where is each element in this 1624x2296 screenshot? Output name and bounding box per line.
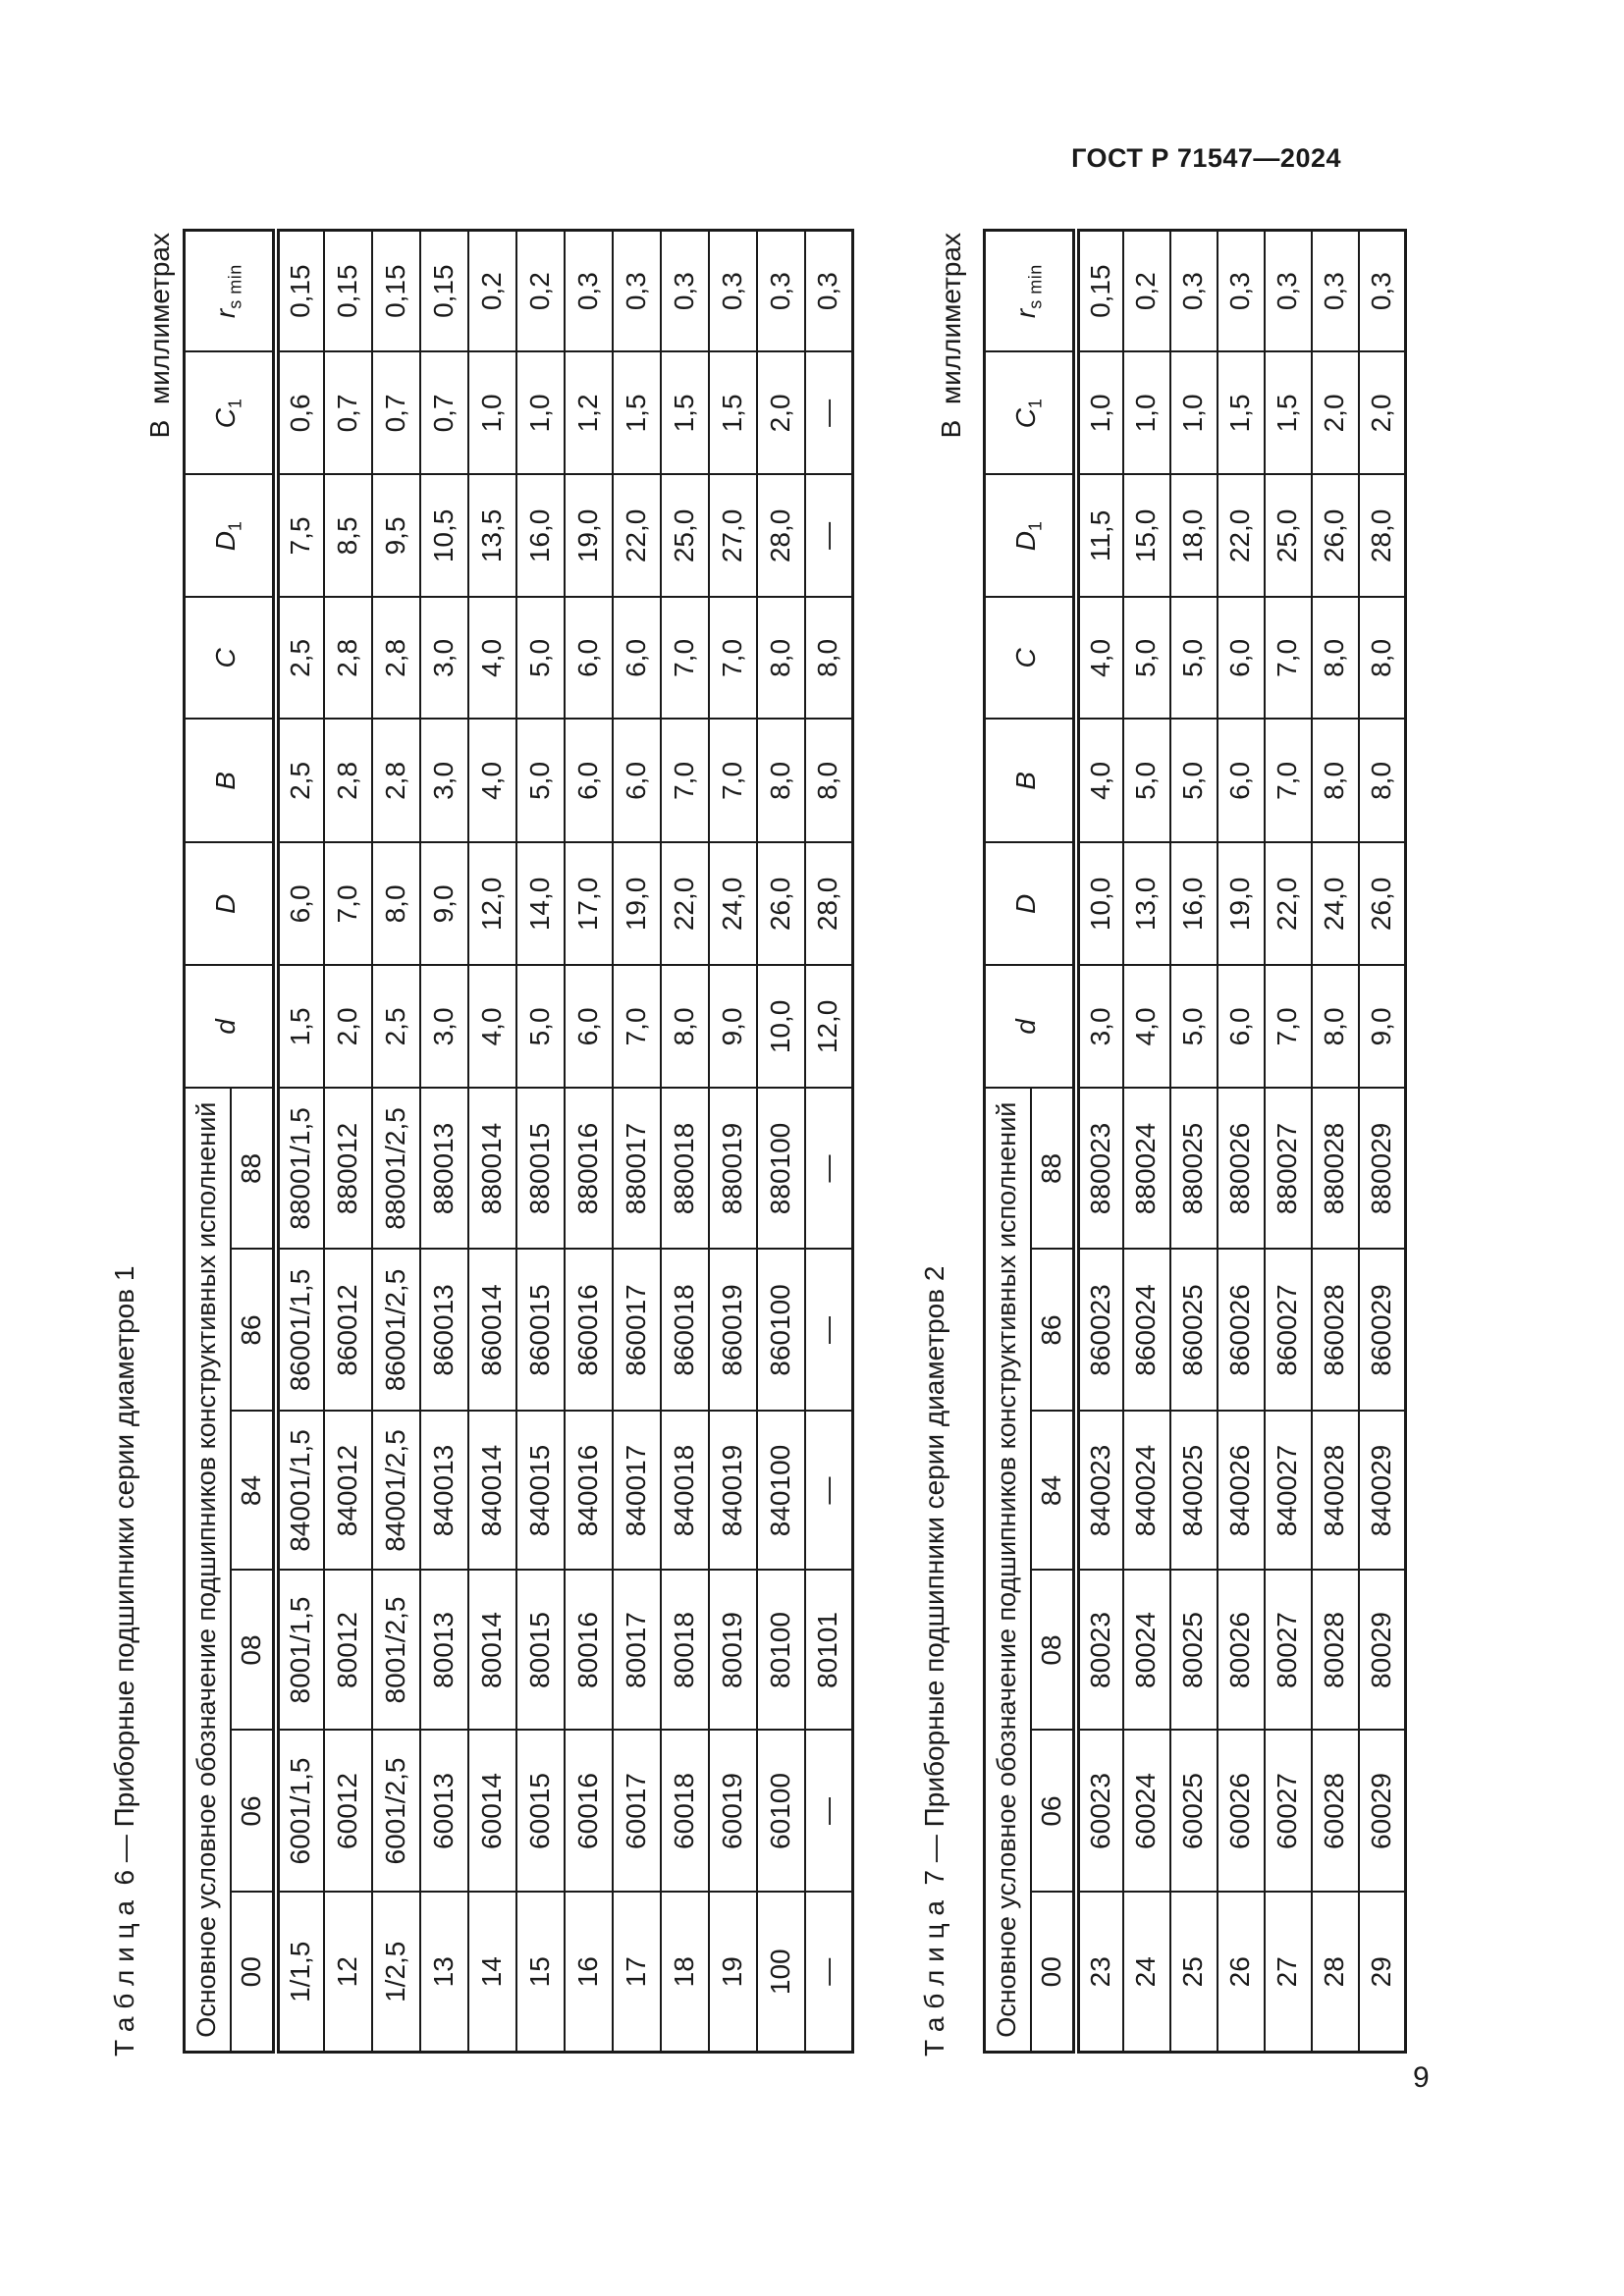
- cell: 0,6: [276, 351, 324, 474]
- cell: 840028: [1312, 1412, 1359, 1571]
- cell: 3,0: [420, 965, 468, 1088]
- cell: 25: [1170, 1893, 1218, 2053]
- cell: 19,0: [1218, 842, 1265, 965]
- cell: 12: [324, 1893, 372, 2053]
- cell: 25,0: [1265, 474, 1312, 597]
- cell: 0,3: [757, 230, 805, 351]
- cell: 1,5: [276, 965, 324, 1088]
- cell: 16: [565, 1893, 613, 2053]
- cell: 0,3: [661, 230, 709, 351]
- cell: 5,0: [1170, 719, 1218, 842]
- cell: 880015: [516, 1088, 565, 1249]
- cell: 26,0: [1312, 474, 1359, 597]
- cell: 7,0: [661, 719, 709, 842]
- series-header-00: 00: [1031, 1893, 1076, 2053]
- cell: 0,15: [324, 230, 372, 351]
- cell: 0,3: [805, 230, 853, 351]
- table-row: 1860018800188400188600188800188,022,07,0…: [661, 230, 709, 2052]
- cell: 6,0: [565, 965, 613, 1088]
- cell: 0,7: [420, 351, 468, 474]
- cell: 6,0: [276, 842, 324, 965]
- cell: 0,15: [276, 230, 324, 351]
- cell: 7,0: [613, 965, 661, 1088]
- table6-container: Основное условное обозначение подшипнико…: [183, 232, 864, 2054]
- cell: 4,0: [1076, 597, 1123, 719]
- standard-code-header: ГОСТ Р 71547—2024: [1071, 143, 1341, 174]
- cell: 3,0: [1076, 965, 1123, 1088]
- table-row: 2960029800298400298600298800299,026,08,0…: [1359, 230, 1406, 2052]
- cell: 60028: [1312, 1731, 1359, 1893]
- cell: 860027: [1265, 1250, 1312, 1412]
- cell: 80025: [1170, 1571, 1218, 1731]
- cell: 880029: [1359, 1088, 1406, 1249]
- table7-units-note: В миллиметрах: [935, 233, 968, 2056]
- cell: 860026: [1218, 1250, 1265, 1412]
- cell: 0,7: [372, 351, 420, 474]
- cell: 9,0: [420, 842, 468, 965]
- cell: 2,5: [276, 719, 324, 842]
- table-row: 1/1,56001/1,58001/1,584001/1,586001/1,58…: [276, 230, 324, 2052]
- cell: 1,5: [709, 351, 757, 474]
- cell: 8,0: [805, 719, 853, 842]
- cell: 880016: [565, 1088, 613, 1249]
- cell: 880025: [1170, 1088, 1218, 1249]
- cell: 1,0: [516, 351, 565, 474]
- series-header-84: 84: [1031, 1412, 1076, 1571]
- cell: 24,0: [709, 842, 757, 965]
- cell: 880023: [1076, 1088, 1123, 1249]
- cell: 60017: [613, 1731, 661, 1893]
- series-header-88: 88: [1031, 1088, 1076, 1249]
- cell: 1,5: [613, 351, 661, 474]
- column-header-D: D: [185, 842, 276, 965]
- cell: 8,0: [1312, 597, 1359, 719]
- cell: 6,0: [1218, 719, 1265, 842]
- cell: 10,0: [1076, 842, 1123, 965]
- cell: 88001/2,5: [372, 1088, 420, 1249]
- cell: 80023: [1076, 1571, 1123, 1731]
- series-header-88: 88: [231, 1088, 276, 1249]
- cell: 880100: [757, 1088, 805, 1249]
- cell: 14,0: [516, 842, 565, 965]
- cell: 0,7: [324, 351, 372, 474]
- cell: 840015: [516, 1412, 565, 1571]
- cell: 60025: [1170, 1731, 1218, 1893]
- cell: 16,0: [516, 474, 565, 597]
- cell: —: [805, 1412, 853, 1571]
- cell: 12,0: [805, 965, 853, 1088]
- cell: 6,0: [613, 719, 661, 842]
- column-header-D: D: [985, 842, 1076, 965]
- cell: 7,0: [709, 719, 757, 842]
- cell: 5,0: [1170, 965, 1218, 1088]
- cell: 60100: [757, 1731, 805, 1893]
- cell: 7,0: [1265, 965, 1312, 1088]
- table-row: 2760027800278400278600278800277,022,07,0…: [1265, 230, 1312, 2052]
- cell: 7,0: [1265, 719, 1312, 842]
- cell: 5,0: [1123, 597, 1170, 719]
- cell: 840027: [1265, 1412, 1312, 1571]
- cell: 880027: [1265, 1088, 1312, 1249]
- cell: 8,0: [757, 597, 805, 719]
- cell: 1,2: [565, 351, 613, 474]
- table-row: 1960019800198400198600198800199,024,07,0…: [709, 230, 757, 2052]
- cell: 0,3: [1312, 230, 1359, 351]
- cell: 5,0: [1170, 597, 1218, 719]
- cell: 880028: [1312, 1088, 1359, 1249]
- cell: 80019: [709, 1571, 757, 1731]
- cell: 18: [661, 1893, 709, 2053]
- cell: 5,0: [516, 965, 565, 1088]
- cell: 27: [1265, 1893, 1312, 2053]
- cell: 84001/1,5: [276, 1412, 324, 1571]
- cell: 840026: [1218, 1412, 1265, 1571]
- cell: 7,0: [661, 597, 709, 719]
- cell: 2,8: [324, 719, 372, 842]
- cell: —: [805, 1731, 853, 1893]
- cell: 22,0: [1265, 842, 1312, 965]
- cell: 6001/1,5: [276, 1731, 324, 1893]
- cell: 0,3: [1359, 230, 1406, 351]
- cell: 1,0: [1076, 351, 1123, 474]
- cell: 86001/2,5: [372, 1250, 420, 1412]
- cell: 2,0: [757, 351, 805, 474]
- column-header-d: d: [985, 965, 1076, 1088]
- cell: 0,15: [420, 230, 468, 351]
- cell: 860023: [1076, 1250, 1123, 1412]
- cell: 22,0: [1218, 474, 1265, 597]
- cell: 24: [1123, 1893, 1170, 2053]
- cell: 80017: [613, 1571, 661, 1731]
- cell: 0,3: [565, 230, 613, 351]
- table6-grid: Основное условное обозначение подшипнико…: [183, 229, 854, 2054]
- cell: —: [805, 1088, 853, 1249]
- cell: 860100: [757, 1250, 805, 1412]
- cell: 6,0: [565, 719, 613, 842]
- column-header-d: d: [185, 965, 276, 1088]
- cell: —: [805, 474, 853, 597]
- cell: 60018: [661, 1731, 709, 1893]
- cell: 100: [757, 1893, 805, 2053]
- table7-container: Основное условное обозначение подшипнико…: [983, 232, 1421, 2054]
- cell: 4,0: [468, 965, 516, 1088]
- cell: 0,2: [1123, 230, 1170, 351]
- cell: 29: [1359, 1893, 1406, 2053]
- cell: 1,5: [1265, 351, 1312, 474]
- table-row: 1660016800168400168600168800166,017,06,0…: [565, 230, 613, 2052]
- cell: 25,0: [661, 474, 709, 597]
- cell: 4,0: [468, 719, 516, 842]
- cell: 860029: [1359, 1250, 1406, 1412]
- cell: 880024: [1123, 1088, 1170, 1249]
- cell: 860018: [661, 1250, 709, 1412]
- cell: 8,0: [757, 719, 805, 842]
- document-page: ГОСТ Р 71547—2024 Т а б л и ц а 6 — Приб…: [0, 0, 1624, 2296]
- cell: 1/1,5: [276, 1893, 324, 2053]
- cell: 0,3: [613, 230, 661, 351]
- cell: 0,3: [1265, 230, 1312, 351]
- cell: 28: [1312, 1893, 1359, 2053]
- cell: 0,15: [372, 230, 420, 351]
- table-row: 1/2,56001/2,58001/2,584001/2,586001/2,58…: [372, 230, 420, 2052]
- cell: 7,0: [709, 597, 757, 719]
- cell: 9,5: [372, 474, 420, 597]
- cell: 28,0: [805, 842, 853, 965]
- page-number: 9: [1413, 2061, 1430, 2095]
- cell: 0,2: [468, 230, 516, 351]
- cell: 22,0: [613, 474, 661, 597]
- cell: 840024: [1123, 1412, 1170, 1571]
- table-row: 2460024800248400248600248800244,013,05,0…: [1123, 230, 1170, 2052]
- cell: 8,0: [1359, 719, 1406, 842]
- cell: 60024: [1123, 1731, 1170, 1893]
- cell: 26,0: [757, 842, 805, 965]
- cell: 8,5: [324, 474, 372, 597]
- table-row: 1560015800158400158600158800155,014,05,0…: [516, 230, 565, 2052]
- cell: 8,0: [1359, 597, 1406, 719]
- cell: 60015: [516, 1731, 565, 1893]
- table-row: 2860028800288400288600288800288,024,08,0…: [1312, 230, 1359, 2052]
- cell: 1,0: [1170, 351, 1218, 474]
- cell: 18,0: [1170, 474, 1218, 597]
- series-header-08: 08: [231, 1571, 276, 1731]
- column-header-C: C: [185, 597, 276, 719]
- column-header-C: C: [985, 597, 1076, 719]
- cell: 2,5: [372, 965, 420, 1088]
- cell: 880026: [1218, 1088, 1265, 1249]
- cell: 2,0: [1312, 351, 1359, 474]
- cell: —: [805, 1893, 853, 2053]
- table7-grid: Основное условное обозначение подшипнико…: [983, 229, 1407, 2054]
- table-row: 2560025800258400258600258800255,016,05,0…: [1170, 230, 1218, 2052]
- cell: 8001/2,5: [372, 1571, 420, 1731]
- cell: 860024: [1123, 1250, 1170, 1412]
- cell: 860019: [709, 1250, 757, 1412]
- cell: 6001/2,5: [372, 1731, 420, 1893]
- table-row: ——80101———12,028,08,08,0——0,3: [805, 230, 853, 2052]
- cell: 6,0: [1218, 965, 1265, 1088]
- cell: 80012: [324, 1571, 372, 1731]
- series-header-06: 06: [231, 1731, 276, 1893]
- cell: 6,0: [613, 597, 661, 719]
- cell: 2,5: [276, 597, 324, 719]
- cell: 8001/1,5: [276, 1571, 324, 1731]
- cell: 60026: [1218, 1731, 1265, 1893]
- series-header-08: 08: [1031, 1571, 1076, 1731]
- cell: 80027: [1265, 1571, 1312, 1731]
- cell: 860014: [468, 1250, 516, 1412]
- cell: 3,0: [420, 597, 468, 719]
- cell: 880017: [613, 1088, 661, 1249]
- cell: 2,0: [1359, 351, 1406, 474]
- cell: 1/2,5: [372, 1893, 420, 2053]
- series-header-84: 84: [231, 1412, 276, 1571]
- cell: 80024: [1123, 1571, 1170, 1731]
- cell: 0,3: [1218, 230, 1265, 351]
- cell: 12,0: [468, 842, 516, 965]
- cell: 60016: [565, 1731, 613, 1893]
- cell: 19: [709, 1893, 757, 2053]
- cell: 80014: [468, 1571, 516, 1731]
- cell: 13: [420, 1893, 468, 2053]
- cell: 4,0: [1123, 965, 1170, 1088]
- cell: 19,0: [613, 842, 661, 965]
- cell: 1,0: [1123, 351, 1170, 474]
- cell: 840016: [565, 1412, 613, 1571]
- cell: 60014: [468, 1731, 516, 1893]
- cell: 11,5: [1076, 474, 1123, 597]
- table-row: 2360023800238400238600238800233,010,04,0…: [1076, 230, 1123, 2052]
- cell: 60012: [324, 1731, 372, 1893]
- cell: 15: [516, 1893, 565, 2053]
- cell: 7,0: [1265, 597, 1312, 719]
- table6-title: Т а б л и ц а 6 — Приборные подшипники с…: [108, 1266, 141, 2056]
- column-header-rsmin: rs min: [185, 230, 276, 351]
- cell: 2,8: [372, 597, 420, 719]
- column-header-D1: D1: [185, 474, 276, 597]
- cell: 60023: [1076, 1731, 1123, 1893]
- cell: —: [805, 1250, 853, 1412]
- cell: 28,0: [1359, 474, 1406, 597]
- cell: 16,0: [1170, 842, 1218, 965]
- cell: 27,0: [709, 474, 757, 597]
- column-header-B: B: [985, 719, 1076, 842]
- cell: 80101: [805, 1571, 853, 1731]
- cell: 60013: [420, 1731, 468, 1893]
- cell: 28,0: [757, 474, 805, 597]
- cell: —: [805, 351, 853, 474]
- cell: 6,0: [565, 597, 613, 719]
- table-row: 1460014800148400148600148800144,012,04,0…: [468, 230, 516, 2052]
- cell: 840012: [324, 1412, 372, 1571]
- cell: 880013: [420, 1088, 468, 1249]
- cell: 9,0: [1359, 965, 1406, 1088]
- cell: 17: [613, 1893, 661, 2053]
- table-row: 100601008010084010086010088010010,026,08…: [757, 230, 805, 2052]
- table-row: 1260012800128400128600128800122,07,02,82…: [324, 230, 372, 2052]
- cell: 0,3: [1170, 230, 1218, 351]
- cell: 8,0: [372, 842, 420, 965]
- cell: 13,5: [468, 474, 516, 597]
- cell: 2,8: [324, 597, 372, 719]
- cell: 14: [468, 1893, 516, 2053]
- designation-group-header: Основное условное обозначение подшипнико…: [985, 1088, 1031, 2052]
- cell: 80028: [1312, 1571, 1359, 1731]
- cell: 840100: [757, 1412, 805, 1571]
- cell: 80100: [757, 1571, 805, 1731]
- cell: 7,5: [276, 474, 324, 597]
- cell: 23: [1076, 1893, 1123, 2053]
- column-header-C1: C1: [185, 351, 276, 474]
- cell: 6,0: [1218, 597, 1265, 719]
- column-header-rsmin: rs min: [985, 230, 1076, 351]
- column-header-C1: C1: [985, 351, 1076, 474]
- cell: 22,0: [661, 842, 709, 965]
- cell: 7,0: [324, 842, 372, 965]
- cell: 2,8: [372, 719, 420, 842]
- cell: 10,0: [757, 965, 805, 1088]
- series-header-00: 00: [231, 1893, 276, 2053]
- cell: 8,0: [1312, 719, 1359, 842]
- cell: 860012: [324, 1250, 372, 1412]
- cell: 80018: [661, 1571, 709, 1731]
- cell: 0,3: [709, 230, 757, 351]
- cell: 840013: [420, 1412, 468, 1571]
- cell: 88001/1,5: [276, 1088, 324, 1249]
- cell: 5,0: [516, 597, 565, 719]
- cell: 860015: [516, 1250, 565, 1412]
- cell: 10,5: [420, 474, 468, 597]
- cell: 5,0: [516, 719, 565, 842]
- cell: 15,0: [1123, 474, 1170, 597]
- cell: 80026: [1218, 1571, 1265, 1731]
- cell: 1,5: [1218, 351, 1265, 474]
- cell: 860013: [420, 1250, 468, 1412]
- table6-units-note: В миллиметрах: [143, 233, 177, 2056]
- cell: 880018: [661, 1088, 709, 1249]
- cell: 80015: [516, 1571, 565, 1731]
- column-header-D1: D1: [985, 474, 1076, 597]
- cell: 5,0: [1123, 719, 1170, 842]
- cell: 8,0: [805, 597, 853, 719]
- cell: 3,0: [420, 719, 468, 842]
- cell: 80016: [565, 1571, 613, 1731]
- cell: 26: [1218, 1893, 1265, 2053]
- cell: 880014: [468, 1088, 516, 1249]
- cell: 840014: [468, 1412, 516, 1571]
- cell: 13,0: [1123, 842, 1170, 965]
- cell: 840017: [613, 1412, 661, 1571]
- table-row: 2660026800268400268600268800266,019,06,0…: [1218, 230, 1265, 2052]
- cell: 840018: [661, 1412, 709, 1571]
- series-header-86: 86: [231, 1250, 276, 1412]
- cell: 9,0: [709, 965, 757, 1088]
- cell: 84001/2,5: [372, 1412, 420, 1571]
- cell: 60029: [1359, 1731, 1406, 1893]
- cell: 0,2: [516, 230, 565, 351]
- cell: 1,0: [468, 351, 516, 474]
- cell: 860017: [613, 1250, 661, 1412]
- cell: 840029: [1359, 1412, 1406, 1571]
- cell: 0,15: [1076, 230, 1123, 351]
- cell: 860028: [1312, 1250, 1359, 1412]
- column-header-B: B: [185, 719, 276, 842]
- designation-group-header: Основное условное обозначение подшипнико…: [185, 1088, 231, 2052]
- cell: 60019: [709, 1731, 757, 1893]
- cell: 840025: [1170, 1412, 1218, 1571]
- cell: 2,0: [324, 965, 372, 1088]
- cell: 880019: [709, 1088, 757, 1249]
- cell: 8,0: [661, 965, 709, 1088]
- cell: 80013: [420, 1571, 468, 1731]
- cell: 840019: [709, 1412, 757, 1571]
- cell: 24,0: [1312, 842, 1359, 965]
- table-row: 1360013800138400138600138800133,09,03,03…: [420, 230, 468, 2052]
- cell: 4,0: [468, 597, 516, 719]
- cell: 17,0: [565, 842, 613, 965]
- cell: 1,5: [661, 351, 709, 474]
- cell: 26,0: [1359, 842, 1406, 965]
- cell: 80029: [1359, 1571, 1406, 1731]
- cell: 19,0: [565, 474, 613, 597]
- cell: 840023: [1076, 1412, 1123, 1571]
- cell: 860025: [1170, 1250, 1218, 1412]
- cell: 880012: [324, 1088, 372, 1249]
- series-header-86: 86: [1031, 1250, 1076, 1412]
- cell: 60027: [1265, 1731, 1312, 1893]
- table-row: 1760017800178400178600178800177,019,06,0…: [613, 230, 661, 2052]
- cell: 4,0: [1076, 719, 1123, 842]
